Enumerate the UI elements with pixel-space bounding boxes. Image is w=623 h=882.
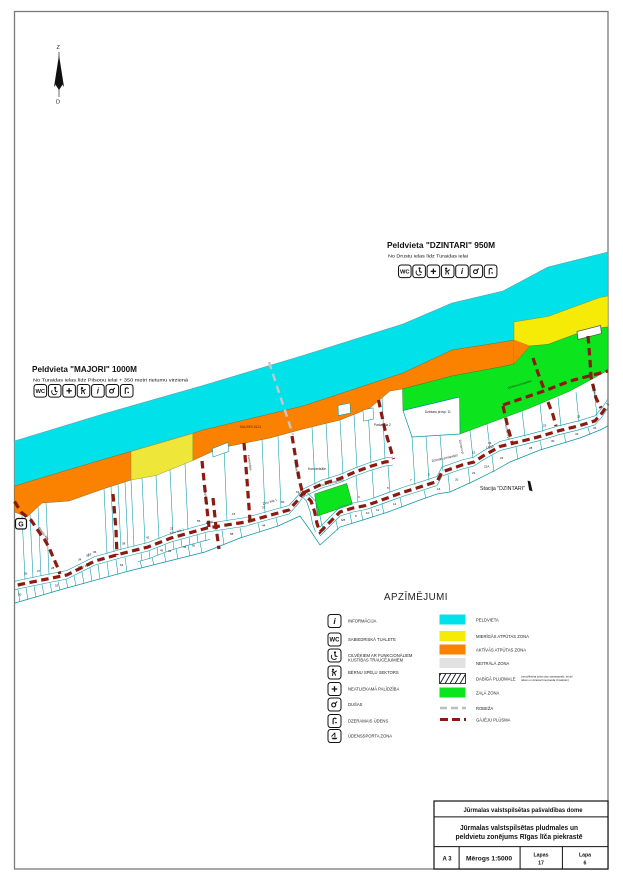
svg-text:INFORMĀCIJA: INFORMĀCIJA bbox=[348, 619, 377, 624]
svg-text:26: 26 bbox=[24, 572, 28, 576]
svg-text:34: 34 bbox=[168, 549, 172, 553]
svg-text:Jūrmalas valstspilsētas pludma: Jūrmalas valstspilsētas pludmales un bbox=[460, 823, 578, 832]
svg-text:MIERĪGĀS ATPŪTAS ZONA: MIERĪGĀS ATPŪTAS ZONA bbox=[476, 634, 529, 639]
svg-text:19: 19 bbox=[488, 441, 492, 445]
svg-text:30: 30 bbox=[551, 439, 555, 443]
svg-text:D: D bbox=[56, 100, 60, 106]
svg-text:Dzintaru prosp. 11: Dzintaru prosp. 11 bbox=[425, 410, 451, 414]
svg-text:12: 12 bbox=[376, 508, 380, 512]
svg-text:ZAĻĀ ZONA: ZAĻĀ ZONA bbox=[476, 691, 499, 696]
svg-text:17: 17 bbox=[538, 861, 544, 867]
svg-text:45/45: 45/45 bbox=[205, 520, 214, 526]
svg-text:WC: WC bbox=[330, 638, 341, 644]
svg-text:50: 50 bbox=[192, 544, 196, 548]
svg-text:KUSTĪBAS TRAUCĒJUMIEM: KUSTĪBAS TRAUCĒJUMIEM bbox=[348, 658, 404, 663]
svg-text:Turaidas iela: Turaidas iela bbox=[293, 459, 300, 477]
svg-text:APZĪMĒJUMI: APZĪMĒJUMI bbox=[384, 591, 448, 603]
svg-text:38: 38 bbox=[122, 542, 126, 546]
svg-text:No Turaidas ielas līdz Pilsoņu: No Turaidas ielas līdz Pilsoņu ielai + 3… bbox=[33, 378, 188, 384]
svg-text:27: 27 bbox=[37, 569, 41, 573]
svg-text:NEATLIEKAMĀ PALĪDZĪBA: NEATLIEKAMĀ PALĪDZĪBA bbox=[348, 687, 399, 692]
svg-text:5: 5 bbox=[387, 486, 389, 490]
svg-text:Tirgoņu iela: Tirgoņu iela bbox=[203, 490, 209, 506]
svg-text:23: 23 bbox=[543, 424, 547, 428]
svg-text:AKTĪVĀS ATPŪTAS ZONA: AKTĪVĀS ATPŪTAS ZONA bbox=[476, 648, 526, 653]
svg-text:3: 3 bbox=[358, 495, 360, 499]
svg-text:Koncertzāle: Koncertzāle bbox=[308, 467, 326, 471]
svg-text:Mērogs 1:5000: Mērogs 1:5000 bbox=[466, 856, 513, 863]
svg-text:22: 22 bbox=[472, 471, 476, 475]
svg-text:28: 28 bbox=[529, 446, 533, 450]
svg-text:WC: WC bbox=[35, 389, 45, 395]
svg-text:24: 24 bbox=[500, 456, 504, 460]
svg-text:61: 61 bbox=[296, 490, 300, 494]
svg-text:Lapa: Lapa bbox=[579, 853, 591, 859]
svg-text:9: 9 bbox=[428, 472, 430, 476]
svg-text:Peldvieta "DZINTARI" 950M: Peldvieta "DZINTARI" 950M bbox=[387, 241, 495, 250]
svg-text:10: 10 bbox=[366, 511, 370, 515]
svg-text:6: 6 bbox=[584, 861, 587, 867]
svg-text:Dzintaru pr.: Dzintaru pr. bbox=[458, 439, 465, 455]
svg-text:22A: 22A bbox=[484, 465, 489, 469]
svg-text:55: 55 bbox=[197, 519, 201, 523]
svg-text:36: 36 bbox=[183, 545, 187, 549]
svg-text:ŪDENSSPORTA ZONA: ŪDENSSPORTA ZONA bbox=[348, 734, 392, 739]
svg-text:42: 42 bbox=[146, 536, 150, 540]
svg-text:25: 25 bbox=[577, 414, 581, 418]
svg-text:ūdens un krasta līmeņveida izm: ūdens un krasta līmeņveida izmaiņām) bbox=[521, 678, 569, 682]
svg-text:ROBEŽA: ROBEŽA bbox=[476, 706, 493, 711]
svg-text:44: 44 bbox=[262, 523, 266, 527]
svg-text:Dzintaru pr.: Dzintaru pr. bbox=[592, 384, 599, 400]
svg-text:G: G bbox=[18, 522, 24, 529]
svg-text:Zīnu iela: Zīnu iela bbox=[77, 563, 90, 570]
svg-text:A 3: A 3 bbox=[442, 857, 452, 863]
svg-text:GĀJĒJU PLŪSMA: GĀJĒJU PLŪSMA bbox=[476, 718, 511, 723]
svg-text:34: 34 bbox=[78, 557, 82, 561]
svg-text:Z: Z bbox=[57, 45, 61, 51]
svg-text:36: 36 bbox=[93, 550, 97, 554]
svg-text:23: 23 bbox=[170, 526, 174, 530]
svg-text:58: 58 bbox=[230, 532, 234, 536]
svg-text:Lapas: Lapas bbox=[534, 853, 549, 859]
svg-text:DZERAMAIS ŪDENS: DZERAMAIS ŪDENS bbox=[348, 719, 388, 724]
svg-text:28: 28 bbox=[51, 566, 55, 570]
svg-text:Parka iela 2: Parka iela 2 bbox=[374, 423, 391, 427]
svg-text:NEITRĀLĀ ZONA: NEITRĀLĀ ZONA bbox=[476, 661, 509, 666]
svg-text:Stacija "DZINTARI": Stacija "DZINTARI" bbox=[480, 486, 525, 492]
svg-text:DUŠAS: DUŠAS bbox=[348, 702, 363, 707]
svg-text:Peldvieta "MAJORI" 1000M: Peldvieta "MAJORI" 1000M bbox=[32, 365, 137, 374]
svg-text:32: 32 bbox=[575, 432, 579, 436]
svg-text:No Drustu ielas līdz Turaidas: No Drustu ielas līdz Turaidas ielai bbox=[388, 254, 468, 260]
svg-text:6/8: 6/8 bbox=[341, 518, 346, 522]
svg-text:52: 52 bbox=[55, 583, 59, 587]
svg-text:49: 49 bbox=[160, 549, 164, 553]
svg-text:Dzintaru pr.: Dzintaru pr. bbox=[504, 424, 511, 440]
svg-text:PELDVIETA: PELDVIETA bbox=[476, 618, 499, 623]
svg-text:20: 20 bbox=[455, 478, 459, 482]
svg-text:16: 16 bbox=[437, 487, 441, 491]
svg-text:53: 53 bbox=[88, 553, 92, 557]
svg-text:54: 54 bbox=[120, 563, 124, 567]
svg-text:34: 34 bbox=[593, 426, 597, 430]
svg-text:8: 8 bbox=[355, 514, 357, 518]
svg-text:SABIEDRISKĀ TUALETE: SABIEDRISKĀ TUALETE bbox=[348, 637, 396, 642]
svg-text:14: 14 bbox=[393, 502, 397, 506]
svg-text:50: 50 bbox=[281, 500, 285, 504]
svg-text:BĒRNU SPĒĻU SEKTORS: BĒRNU SPĒĻU SEKTORS bbox=[348, 670, 399, 675]
svg-text:Dzintaru prospekts: Dzintaru prospekts bbox=[431, 453, 458, 463]
svg-text:30: 30 bbox=[18, 593, 22, 597]
svg-text:DABĪGĀ PLUDMALE: DABĪGĀ PLUDMALE bbox=[476, 677, 516, 682]
svg-text:15: 15 bbox=[472, 451, 476, 455]
svg-text:37: 37 bbox=[262, 506, 266, 510]
svg-text:MAJORI 6121: MAJORI 6121 bbox=[240, 425, 261, 429]
svg-text:peldvietu zonējums Rīgas līča: peldvietu zonējums Rīgas līča piekrastē bbox=[456, 832, 583, 841]
svg-text:WC: WC bbox=[400, 269, 410, 275]
svg-text:Jūrmalas valstspilsētas pašval: Jūrmalas valstspilsētas pašvaldības dome bbox=[464, 807, 584, 814]
svg-text:15: 15 bbox=[232, 512, 236, 516]
svg-text:7: 7 bbox=[410, 478, 412, 482]
